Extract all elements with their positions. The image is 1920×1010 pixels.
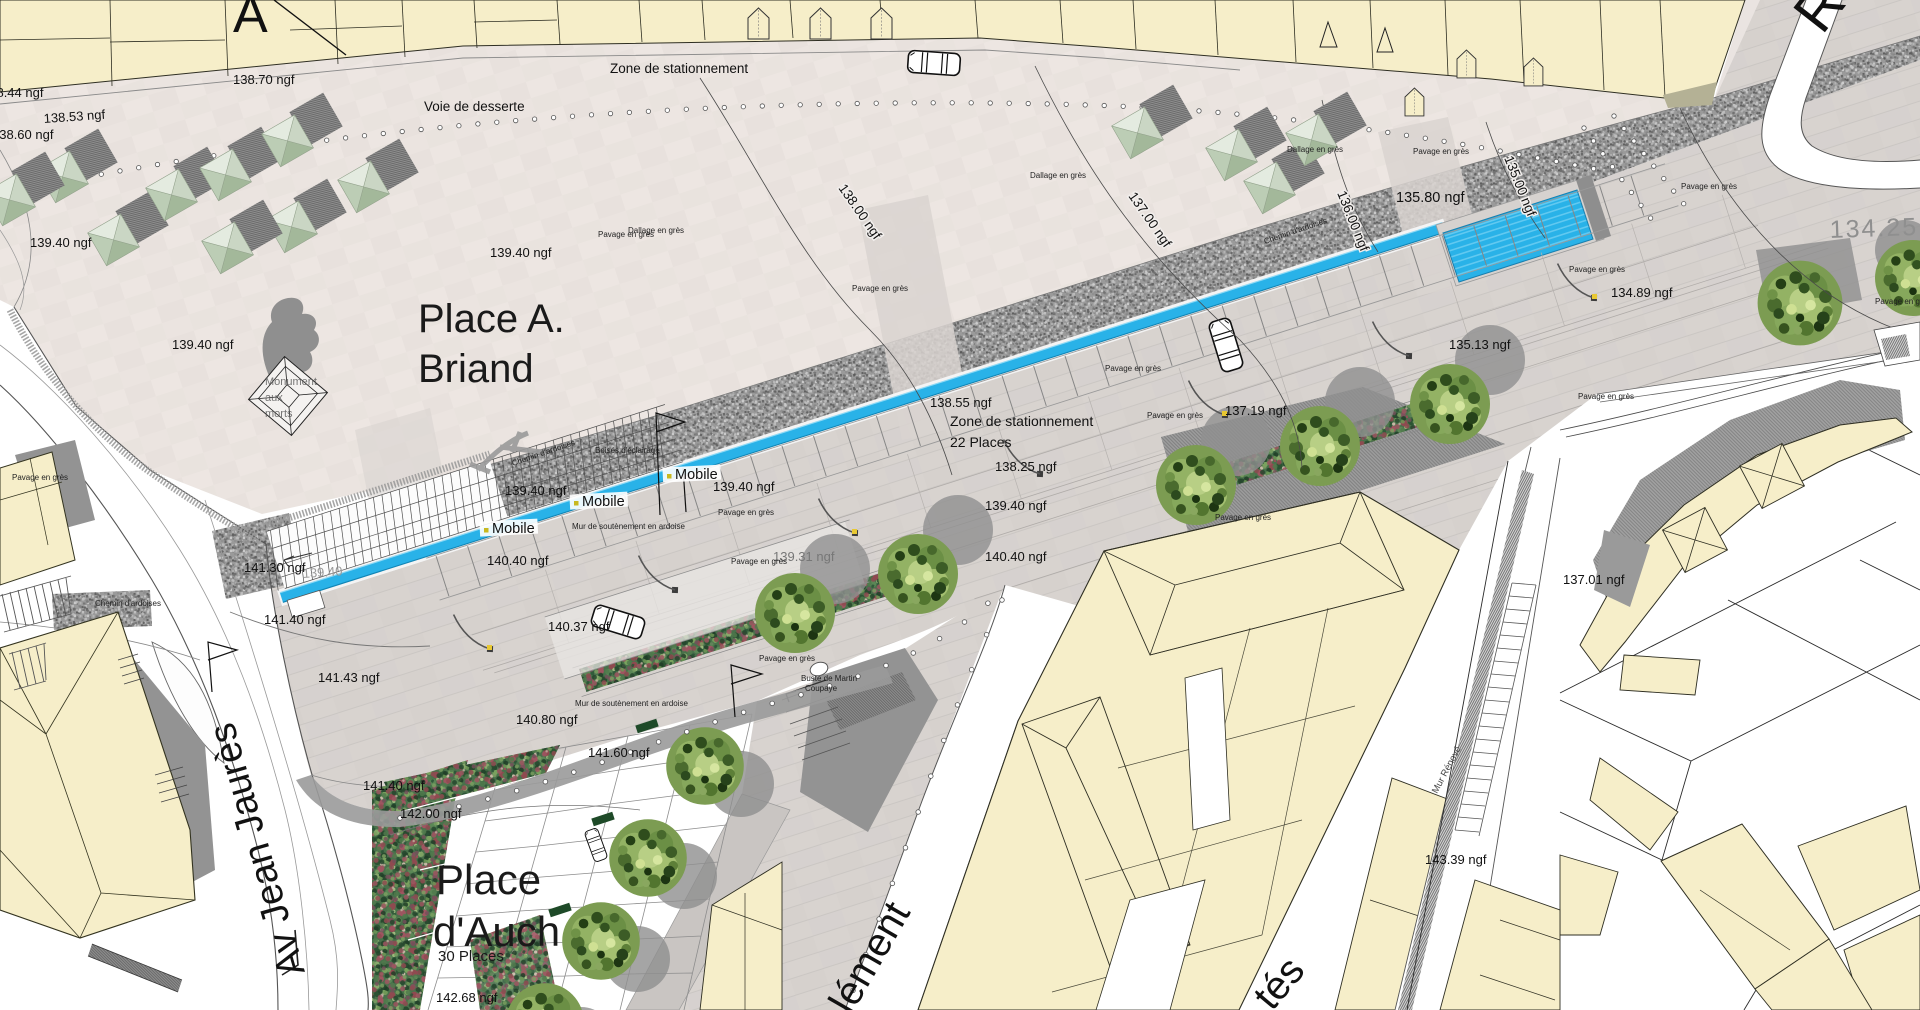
svg-text:140.80 ngf: 140.80 ngf	[516, 712, 578, 727]
svg-text:Buste de Martin: Buste de Martin	[801, 674, 857, 683]
svg-text:Mobile: Mobile	[582, 494, 625, 510]
svg-text:30 Places: 30 Places	[438, 948, 504, 965]
svg-text:Pavage en grès: Pavage en grès	[718, 508, 774, 517]
svg-text:Pavage en grès: Pavage en grès	[852, 284, 908, 293]
svg-text:138.70 ngf: 138.70 ngf	[233, 72, 295, 87]
svg-text:Monument: Monument	[265, 376, 317, 388]
svg-text:141.40 ngf: 141.40 ngf	[264, 612, 326, 627]
svg-text:Pavage en grès: Pavage en grès	[1413, 147, 1469, 156]
svg-text:138.25 ngf: 138.25 ngf	[995, 459, 1057, 474]
svg-text:Mobile: Mobile	[492, 521, 535, 537]
svg-text:Mur de soutènement en ardoise: Mur de soutènement en ardoise	[572, 522, 686, 531]
svg-text:139.40 ngf: 139.40 ngf	[713, 479, 775, 494]
svg-text:Dallage en grès: Dallage en grès	[1030, 171, 1086, 180]
svg-text:Mur de soutènement en ardoise: Mur de soutènement en ardoise	[575, 699, 689, 708]
svg-text:Pavage en grès: Pavage en grès	[1105, 364, 1161, 373]
svg-text:137.19 ngf: 137.19 ngf	[1225, 403, 1287, 418]
svg-text:Pavage en grès: Pavage en grès	[12, 473, 68, 482]
svg-text:morts: morts	[265, 408, 293, 420]
svg-text:Zone de stationnement: Zone de stationnement	[950, 413, 1093, 429]
svg-text:138.55 ngf: 138.55 ngf	[930, 395, 992, 410]
svg-text:142.00 ngf: 142.00 ngf	[400, 806, 462, 821]
svg-text:Pavage en grès: Pavage en grès	[1569, 265, 1625, 274]
svg-text:Pavage en grès: Pavage en grès	[1147, 411, 1203, 420]
svg-text:Pavage en grès: Pavage en grès	[1215, 513, 1271, 522]
svg-text:140.40 ngf: 140.40 ngf	[985, 549, 1047, 564]
svg-text:22 Places: 22 Places	[950, 434, 1011, 450]
svg-text:141.40 ngf: 141.40 ngf	[363, 778, 425, 793]
svg-text:143.39 ngf: 143.39 ngf	[1425, 852, 1487, 867]
svg-text:140.37 ngf: 140.37 ngf	[548, 619, 610, 634]
svg-text:139.40 ngf: 139.40 ngf	[505, 483, 567, 498]
svg-text:140.40 ngf: 140.40 ngf	[487, 553, 549, 568]
svg-text:134.89 ngf: 134.89 ngf	[1611, 285, 1673, 300]
svg-text:141.30 ngf: 141.30 ngf	[244, 560, 306, 575]
svg-text:Pavage en grès: Pavage en grès	[759, 654, 815, 663]
svg-text:Place A.: Place A.	[418, 297, 565, 341]
svg-text:Dallage en grès: Dallage en grès	[1287, 145, 1343, 154]
svg-text:Voie de desserte: Voie de desserte	[424, 99, 525, 114]
svg-text:139.40 ngf: 139.40 ngf	[30, 235, 92, 250]
svg-text:Chemin d'ardoises: Chemin d'ardoises	[95, 599, 161, 608]
svg-text:141.43 ngf: 141.43 ngf	[318, 670, 380, 685]
svg-text:Pavage en grès: Pavage en grès	[1578, 392, 1634, 401]
svg-text:135.80 ngf: 135.80 ngf	[1396, 190, 1466, 206]
svg-text:139.40 ngf: 139.40 ngf	[985, 498, 1047, 513]
svg-text:Coupaye: Coupaye	[805, 684, 838, 693]
svg-text:138.60 ngf: 138.60 ngf	[0, 127, 54, 142]
svg-text:135.13 ngf: 135.13 ngf	[1449, 337, 1511, 352]
svg-text:137.01 ngf: 137.01 ngf	[1563, 572, 1625, 587]
svg-text:Pavage en grès: Pavage en grès	[598, 230, 654, 239]
svg-text:Briand: Briand	[418, 347, 534, 391]
svg-text:138.44 ngf: 138.44 ngf	[0, 85, 44, 100]
svg-text:Pavage en grès: Pavage en grès	[1681, 182, 1737, 191]
svg-text:Zone de stationnement: Zone de stationnement	[610, 61, 748, 76]
svg-text:Pavage en grès: Pavage en grès	[1875, 297, 1920, 306]
svg-text:139.40 ngf: 139.40 ngf	[490, 245, 552, 260]
svg-text:Boisés d'éclairage: Boisés d'éclairage	[595, 446, 660, 455]
svg-text:aux: aux	[265, 392, 283, 404]
svg-text:Place: Place	[436, 856, 541, 903]
svg-text:139.40 ngf: 139.40 ngf	[172, 337, 234, 352]
svg-text:142.68 ngf: 142.68 ngf	[436, 990, 498, 1005]
svg-text:134.25 ng: 134.25 ng	[1829, 212, 1920, 244]
svg-text:A: A	[233, 0, 268, 44]
svg-text:141.60 ngf: 141.60 ngf	[588, 745, 650, 760]
svg-text:139.40: 139.40	[302, 563, 343, 581]
svg-text:Pavage en grès: Pavage en grès	[731, 557, 787, 566]
svg-text:Mobile: Mobile	[675, 467, 718, 483]
